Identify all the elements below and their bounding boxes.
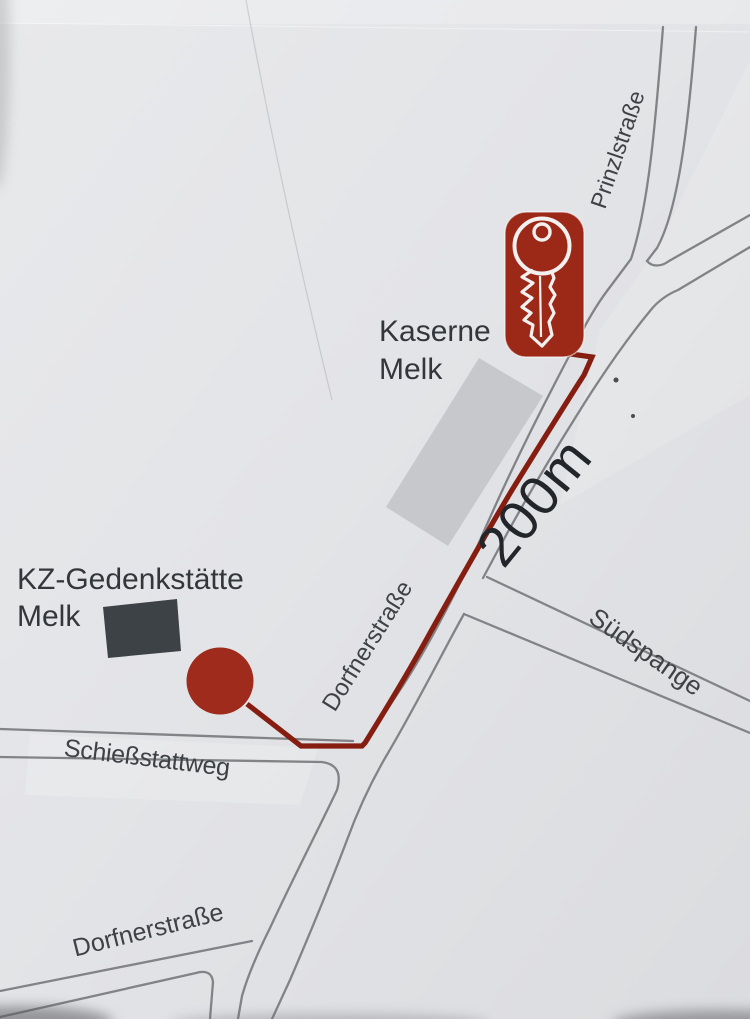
map-dot [614, 378, 619, 383]
melk-directions-map: Prinzlstraße Dorfnerstraße Südspange Sch… [0, 0, 750, 1019]
memorial-label-line2: Melk [17, 600, 81, 633]
circle-marker [187, 648, 254, 715]
sign-top-edge [0, 0, 750, 24]
key-blade-slit [540, 276, 541, 337]
map-sign-photo: Prinzlstraße Dorfnerstraße Südspange Sch… [0, 0, 750, 1019]
memorial-label-line1: KZ-Gedenkstätte [17, 563, 244, 596]
kaserne-label-line1: Kaserne [379, 315, 491, 348]
memorial-building [103, 599, 181, 658]
kaserne-label-line2: Melk [379, 353, 443, 386]
map-background [0, 0, 750, 1019]
map-dot [631, 414, 635, 418]
key-icon [505, 212, 584, 357]
